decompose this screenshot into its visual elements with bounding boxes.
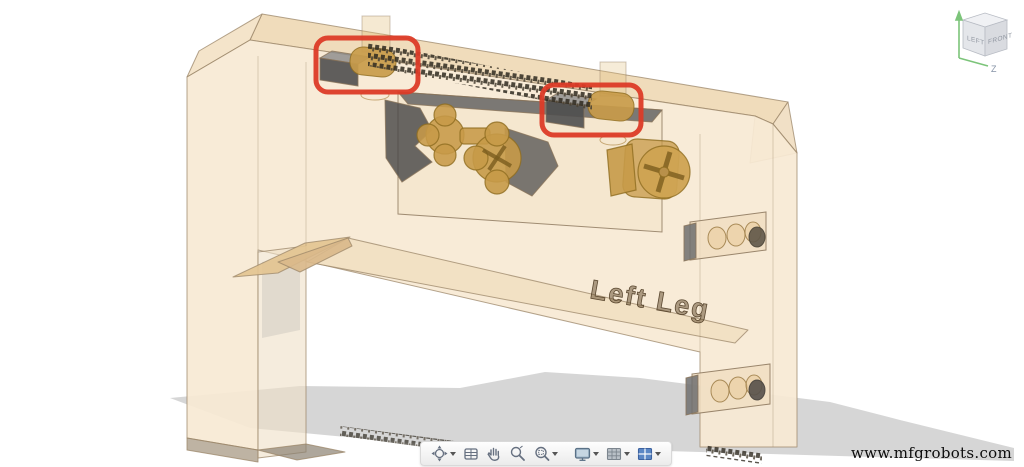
fit-button[interactable] bbox=[531, 444, 560, 463]
zoom-button[interactable] bbox=[507, 444, 528, 463]
viewports-icon bbox=[637, 446, 653, 462]
navigation-toolbar bbox=[420, 441, 672, 466]
look-at-button[interactable] bbox=[461, 445, 481, 463]
grid-icon bbox=[606, 446, 622, 462]
display-settings-button[interactable] bbox=[572, 445, 601, 463]
cad-viewport[interactable]: Left Leg LEFT FRONT Z bbox=[0, 0, 1024, 467]
orbit-dropdown-caret[interactable] bbox=[450, 452, 456, 456]
axis-z-label: Z bbox=[991, 64, 997, 74]
phillips-screw bbox=[607, 138, 690, 200]
model-canvas[interactable]: Left Leg bbox=[0, 0, 1024, 467]
look-at-icon bbox=[463, 446, 479, 462]
orbit-icon bbox=[431, 445, 448, 462]
view-cube[interactable]: LEFT FRONT Z bbox=[938, 0, 1024, 84]
orbit-button[interactable] bbox=[429, 444, 458, 463]
viewports-button[interactable] bbox=[635, 445, 663, 463]
pan-hand-icon bbox=[486, 446, 502, 462]
watermark-text: www.mfgrobots.com bbox=[851, 444, 1012, 462]
grid-and-snaps-button[interactable] bbox=[604, 445, 632, 463]
fit-dropdown-caret[interactable] bbox=[552, 452, 558, 456]
zoom-window-icon bbox=[533, 445, 550, 462]
viewports-dropdown-caret[interactable] bbox=[655, 452, 661, 456]
pan-button[interactable] bbox=[484, 445, 504, 463]
grid-dropdown-caret[interactable] bbox=[624, 452, 630, 456]
zoom-icon bbox=[509, 445, 526, 462]
display-settings-dropdown-caret[interactable] bbox=[593, 452, 599, 456]
display-settings-icon bbox=[574, 446, 591, 462]
